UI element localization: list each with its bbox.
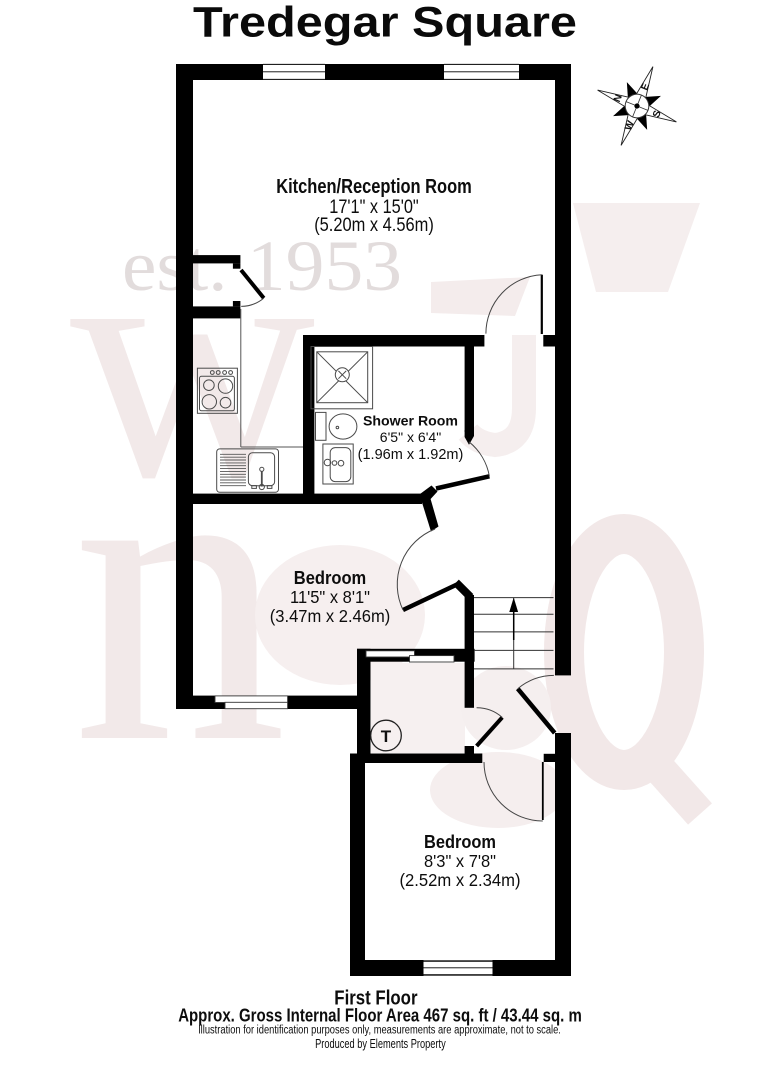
svg-text:(5.20m x 4.56m): (5.20m x 4.56m) [314, 215, 434, 236]
svg-text:(3.47m x 2.46m): (3.47m x 2.46m) [270, 606, 391, 626]
svg-text:Produced by Elements Property: Produced by Elements Property [315, 1037, 446, 1051]
svg-text:Shower Room: Shower Room [363, 413, 458, 429]
svg-text:8'3" x 7'8": 8'3" x 7'8" [424, 851, 496, 871]
svg-text:Bedroom: Bedroom [424, 832, 496, 852]
svg-text:(2.52m x 2.34m): (2.52m x 2.34m) [400, 870, 521, 890]
svg-text:T: T [381, 727, 392, 746]
svg-text:Illustration for identificatio: Illustration for identification purposes… [198, 1024, 561, 1036]
svg-text:6'5" x 6'4": 6'5" x 6'4" [380, 429, 441, 445]
svg-text:Approx. Gross Internal Floor A: Approx. Gross Internal Floor Area 467 sq… [178, 1006, 582, 1026]
svg-text:Kitchen/Reception Room: Kitchen/Reception Room [276, 176, 472, 198]
svg-text:11'5" x 8'1": 11'5" x 8'1" [290, 587, 370, 607]
svg-text:(1.96m x 1.92m): (1.96m x 1.92m) [358, 447, 464, 463]
svg-text:Tredegar Square: Tredegar Square [193, 0, 577, 47]
svg-text:Bedroom: Bedroom [294, 568, 366, 588]
